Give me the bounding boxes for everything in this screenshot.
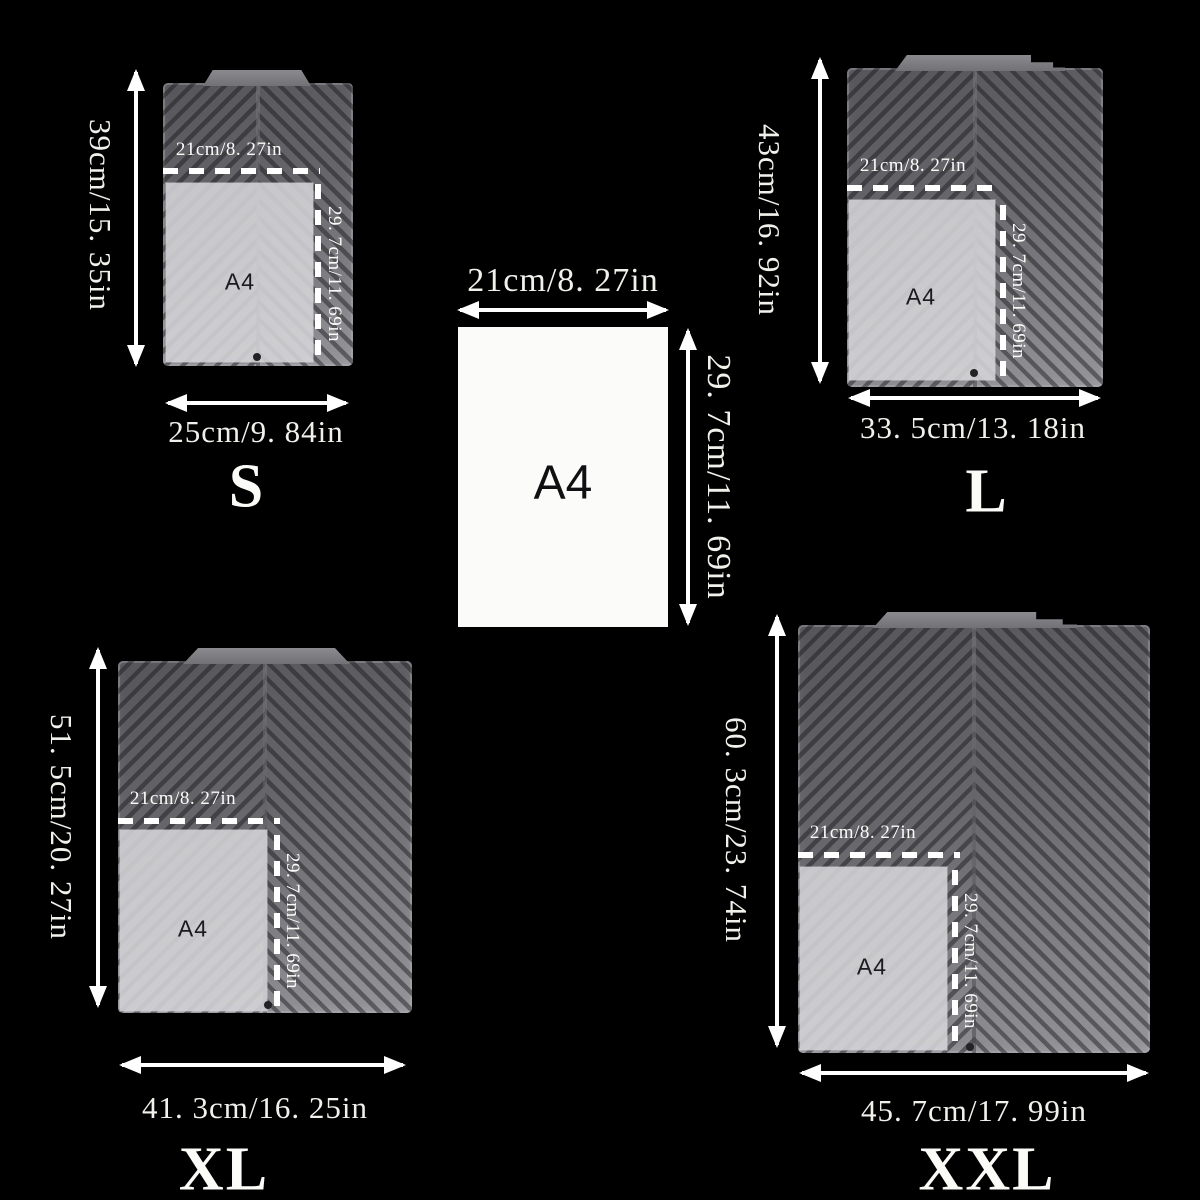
xl-size-letter: XL <box>179 1135 269 1200</box>
mat-xxl: 21cm/8. 27in 29. 7cm/11. 69in A4 <box>798 612 1150 1053</box>
mat-l-a4-width-label: 21cm/8. 27in <box>860 155 966 177</box>
reference-width-arrow <box>460 308 666 312</box>
s-size-letter: S <box>229 452 265 523</box>
mat-l-tab <box>895 55 1065 71</box>
xxl-height-arrow <box>775 617 779 1045</box>
xl-height-arrow <box>96 650 100 1005</box>
s-width-arrow <box>168 401 346 405</box>
mat-xxl-a4-height-label: 29. 7cm/11. 69in <box>959 893 981 1029</box>
xxl-width-label: 45. 7cm/17. 99in <box>861 1093 1087 1129</box>
l-height-label: 43cm/16. 92in <box>751 124 787 316</box>
xl-width-label: 41. 3cm/16. 25in <box>142 1090 368 1126</box>
reference-a4-paper: A4 <box>458 327 668 627</box>
mat-xxl-a4-width-line <box>798 852 960 858</box>
mat-xl-a4-height-line <box>274 835 280 1007</box>
mat-xl-tab <box>183 648 350 664</box>
mat-s-tab <box>203 70 311 86</box>
mat-s-a4-height-label: 29. 7cm/11. 69in <box>323 206 345 342</box>
mat-l-a4-height-label: 29. 7cm/11. 69in <box>1007 223 1029 359</box>
reference-height-label: 29. 7cm/11. 69in <box>699 354 737 599</box>
mat-l-a4-width-line <box>847 185 995 191</box>
reference-width-label: 21cm/8. 27in <box>467 262 658 300</box>
mat-xxl-tab <box>873 612 1077 628</box>
mat-xxl-drain-hole <box>966 1043 974 1051</box>
mat-xl: 21cm/8. 27in 29. 7cm/11. 69in A4 <box>118 648 412 1013</box>
s-height-label: 39cm/15. 35in <box>82 119 118 311</box>
mat-s-drain-hole <box>253 353 261 361</box>
mat-s: 21cm/8. 27in 29. 7cm/11. 69in A4 <box>163 70 353 366</box>
xl-width-arrow <box>122 1063 403 1067</box>
mat-xxl-a4-label: A4 <box>857 954 887 981</box>
l-width-label: 33. 5cm/13. 18in <box>860 410 1086 446</box>
mat-xl-a4-width-label: 21cm/8. 27in <box>130 788 236 810</box>
mat-s-a4-width-line <box>163 168 320 174</box>
mat-xl-a4-width-line <box>118 818 280 824</box>
l-size-letter: L <box>965 457 1008 528</box>
mat-l-a4-label: A4 <box>906 284 936 311</box>
l-width-arrow <box>851 396 1098 400</box>
mat-xl-a4-height-label: 29. 7cm/11. 69in <box>281 853 303 989</box>
xxl-size-letter: XXL <box>919 1135 1056 1200</box>
mat-xl-drain-hole <box>264 1001 272 1009</box>
mat-xxl-a4-height-line <box>952 870 958 1050</box>
mat-s-a4-width-label: 21cm/8. 27in <box>176 139 282 161</box>
mat-l: 21cm/8. 27in 29. 7cm/11. 69in A4 <box>847 55 1103 387</box>
s-width-label: 25cm/9. 84in <box>168 414 344 450</box>
xxl-width-arrow <box>802 1071 1146 1075</box>
reference-height-arrow <box>686 331 690 623</box>
xxl-height-label: 60. 3cm/23. 74in <box>718 717 754 943</box>
mat-s-a4-height-line <box>315 184 321 360</box>
l-height-arrow <box>818 60 822 381</box>
reference-a4-label: A4 <box>534 456 593 511</box>
mat-s-a4-label: A4 <box>225 269 255 296</box>
s-height-arrow <box>134 72 138 364</box>
mat-l-a4-height-line <box>1000 205 1006 377</box>
mat-l-drain-hole <box>970 369 978 377</box>
mat-xl-a4-label: A4 <box>178 916 208 943</box>
mat-xxl-pattern-right <box>974 625 1150 1053</box>
size-chart-canvas: 39cm/15. 35in 21cm/8. 27in 29. 7cm/11. 6… <box>0 0 1200 1200</box>
mat-xxl-a4-width-label: 21cm/8. 27in <box>810 822 916 844</box>
xl-height-label: 51. 5cm/20. 27in <box>43 714 79 940</box>
